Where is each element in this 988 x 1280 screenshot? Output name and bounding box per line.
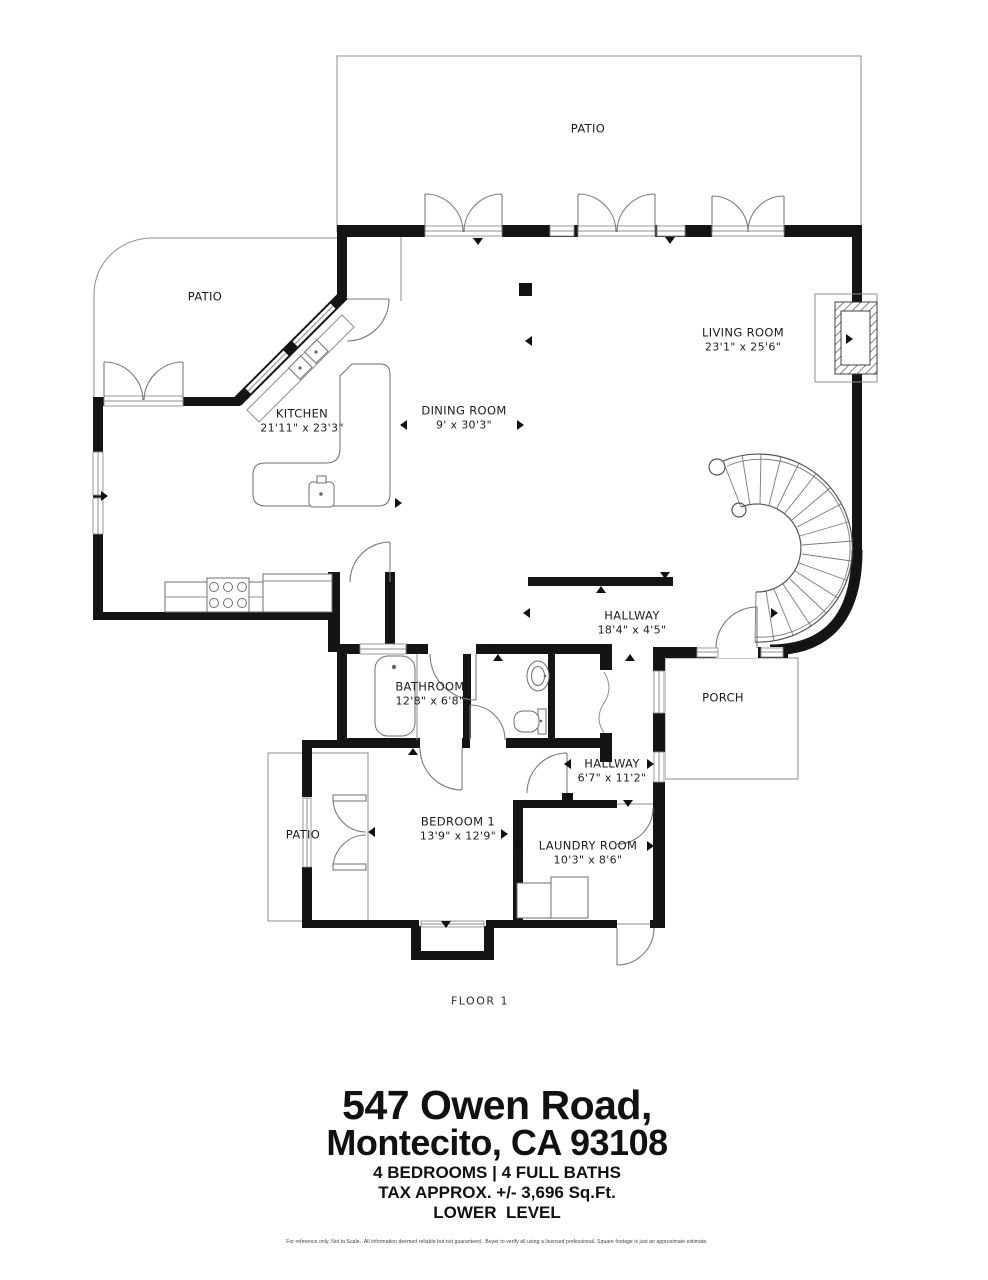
room-dims: 9' x 30'3" [421,418,506,432]
room-dims: 10'3" x 8'6" [539,853,638,867]
dryer [551,877,588,918]
wall-bedroom-topleft [302,740,347,748]
room-dims: 23'1" x 25'6" [702,340,784,354]
wall-topleft-corner [337,225,347,297]
bathroom-label: BATHROOM 12'8" x 6'8" [395,681,464,708]
area-name: PATIO [571,122,605,136]
room-name: KITCHEN [260,408,344,422]
hallway-main-label: HALLWAY 18'4" x 4'5" [598,610,667,637]
kitchen-island [253,364,390,507]
room-name: HALLWAY [598,610,667,624]
kitchen-label: KITCHEN 21'11" x 23'3" [260,408,344,435]
patio-top-outline [337,56,861,232]
stair-outer-rail [723,454,852,642]
room-name: BATHROOM [395,681,464,695]
living-room-label: LIVING ROOM 23'1" x 25'6" [702,327,784,354]
wall-wc-closet-divider [548,654,555,740]
room-dims: 12'8" x 6'8" [395,694,464,708]
wall-bathroom-left [337,644,347,748]
stair-outer-rail-2 [727,459,850,637]
wall-bottom-left [302,920,419,928]
patio-bottom-label: PATIO [286,828,320,842]
wall-curved-corner [770,550,857,650]
disclaimer-text: For reference only. Not to Scale. All in… [286,1239,708,1245]
wall-kitchen-south [93,612,333,620]
washer [517,883,551,918]
patio-top-label: PATIO [571,122,605,136]
french-door [425,194,502,236]
dining-room-label: DINING ROOM 9' x 30'3" [421,405,506,432]
room-dims: 13'9" x 12'9" [420,829,496,843]
wall-bottom-mid [486,920,617,928]
door-bedroom [420,748,462,790]
beds-baths-line: 4 BEDROOMS | 4 FULL BATHS [373,1163,621,1183]
porch-label: PORCH [702,691,744,705]
wall-bay-left [411,926,421,955]
wall-right [852,225,862,555]
tax-area-line: TAX APPROX. +/- 3,696 Sq.Ft. [378,1183,616,1203]
stair-curl-inner [732,503,746,517]
area-name: PORCH [702,691,744,705]
room-name: DINING ROOM [421,405,506,419]
tub-faucet [392,665,396,669]
room-name: LIVING ROOM [702,327,784,341]
area-name: PATIO [286,828,320,842]
area-name: PATIO [188,290,222,304]
stair-curl-outer [709,459,725,475]
door-kitchen-patio [347,299,389,341]
structural-column [519,283,532,296]
spiral-staircase [709,454,852,642]
island-faucet [317,476,326,483]
room-name: BEDROOM 1 [420,816,496,830]
hallway-lower-label: HALLWAY 6'7" x 11'2" [578,758,647,785]
porch-outline [665,658,798,779]
stove [207,578,249,612]
wall-bottom-right [650,920,665,928]
room-dims: 21'11" x 23'3" [260,421,344,435]
wall-bay-right [484,926,494,955]
room-dims: 18'4" x 4'5" [598,623,667,637]
stair-inner-rail [741,504,801,592]
floor-label: FLOOR 1 [451,994,509,1008]
toilet [514,709,546,734]
closet-door-squiggle [599,672,609,733]
room-name: LAUNDRY ROOM [539,840,638,854]
french-door [712,196,784,236]
laundry-appliances [517,877,588,918]
wall-hallway-partition [528,577,673,586]
floor-plan-page: PATIO PATIO LIVING ROOM 23'1" x 25'6" KI… [0,0,988,1280]
address-line-2: Montecito, CA 93108 [326,1122,667,1164]
room-dims: 6'7" x 11'2" [578,771,647,785]
door-hallway2 [527,753,567,793]
door-wc-bottom [470,705,505,740]
bedroom-1-label: BEDROOM 1 13'9" x 12'9" [420,816,496,843]
wall-pantry-right [385,572,395,652]
level-line: LOWER LEVEL [433,1203,561,1223]
french-door [578,194,655,236]
patio-left-label: PATIO [188,290,222,304]
french-door [104,362,183,406]
opening-bathroom [360,644,406,654]
door-laundry-exterior [617,924,654,965]
room-name: HALLWAY [578,758,647,772]
doors [104,194,784,965]
door-porch [716,607,757,648]
wall-bay-bottom [411,951,494,960]
patio-outlines [94,56,861,921]
laundry-room-label: LAUNDRY ROOM 10'3" x 8'6" [539,840,638,867]
